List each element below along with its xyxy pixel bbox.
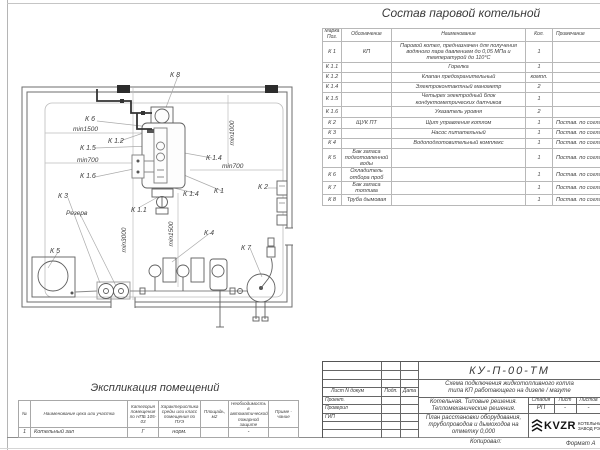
eq-cell: Электроконтактный манометр (392, 83, 526, 93)
eq-cell (342, 107, 392, 118)
sheets-value: - (576, 405, 600, 412)
window-marker (117, 85, 130, 93)
table-row: К 1КППаровой котел, предназначен для пол… (323, 42, 600, 63)
eq-header-designation: Обозначение (342, 29, 392, 42)
eq-cell: 1 (526, 149, 553, 168)
explication-table: № Наименование цеха или участка Категори… (18, 400, 299, 438)
sheet-value: - (554, 405, 576, 412)
doc-title-line: типа КП работающего на дизеле / мазуте (418, 388, 600, 395)
eq-cell: Постав. по согласован. (553, 149, 600, 168)
eq-cell: К 2 (323, 118, 342, 129)
doc-title-line: Схема подключения жидкотопливного котла (418, 381, 600, 388)
eq-cell (392, 195, 526, 206)
flue-arrow (120, 99, 124, 103)
eq-header-qty: Кол. (526, 29, 553, 42)
sheet-title-line: отметку 0,000 (419, 429, 528, 436)
eq-cell: К 3 (323, 129, 342, 139)
eq-cell: К 1.1 (323, 63, 342, 73)
ex-header: Категория помещения по НПБ 105-03 (128, 401, 159, 428)
eq-cell: К 1.5 (323, 93, 342, 107)
label-k8: К 8 (170, 72, 180, 79)
label-k7: К 7 (241, 245, 252, 252)
label-k15: К 1.5 (80, 145, 96, 152)
eq-cell: Труба дымовая (342, 195, 392, 206)
label-k14a: К 1.4 (206, 155, 222, 162)
eq-cell: К 1.6 (323, 107, 342, 118)
table-row: К 1.5Четырех электродный блок кондуктоме… (323, 93, 600, 107)
eq-cell: 1 (526, 195, 553, 206)
col-docum-label: Лист N докум (331, 389, 381, 395)
label-min700-a: min700 (77, 157, 99, 164)
eq-cell: К 1 (323, 42, 342, 63)
eq-cell: Щит управления котлом (392, 118, 526, 129)
water-treatment-k4 (140, 258, 243, 327)
role-gip: ГИП (325, 415, 381, 421)
ex-header: Наименование цеха или участка (31, 401, 128, 428)
table-row: К 7Бак запаса топлива1Постав. по согласо… (323, 181, 600, 194)
equipment-table: Марка Поз. Обозначение Наименование Кол.… (322, 28, 600, 206)
label-k14b: К 1.4 (183, 191, 199, 198)
format-label: Формат А (566, 441, 596, 447)
eq-cell (342, 93, 392, 107)
eq-header-note: Примечание (553, 29, 600, 42)
eq-cell: К 4 (323, 139, 342, 149)
eq-cell: К 7 (323, 181, 342, 194)
tb-line (400, 362, 401, 438)
ex-header: Характеристика среды или класс помещения… (159, 401, 201, 428)
eq-cell (342, 83, 392, 93)
eq-cell: К 8 (323, 195, 342, 206)
table-row: 1 Котельный зал Г норм. - (19, 428, 299, 438)
sheet-title: План расстановки оборудования, трубопров… (419, 415, 528, 437)
kvzr-logo-mark-icon (531, 419, 543, 433)
project-name: Котельная. Типовые решения. Тепломеханич… (419, 399, 528, 413)
eq-cell: КП (342, 42, 392, 63)
eq-cell: Охладитель отбора проб (342, 168, 392, 181)
window-marker (265, 85, 278, 93)
flue-pipe-k8 (97, 89, 152, 129)
tb-line (381, 362, 382, 438)
stage-header: Стадия (528, 398, 554, 404)
eq-cell: К 1.2 (323, 73, 342, 83)
equipment-table-title: Состав паровой котельной (322, 6, 600, 20)
eq-cell: 1 (526, 42, 553, 63)
eq-cell: К 5 (323, 149, 342, 168)
sheet-title-line: трубопроводов и дымоходов на (419, 422, 528, 429)
sheet-title-line: План расстановки оборудования, (419, 415, 528, 422)
ex-cell (201, 428, 229, 438)
eq-cell: 1 (526, 168, 553, 181)
eq-cell (342, 129, 392, 139)
eq-cell (342, 73, 392, 83)
eq-cell (342, 63, 392, 73)
table-row: К 8Труба дымовая1Постав. по согласован. (323, 195, 600, 206)
eq-cell: Постав. по согласован. (553, 129, 600, 139)
title-block: КУ-П-00-ТМ Схема подключения жидкотоплив… (322, 361, 600, 438)
eq-cell: Водоподготовительный комплекс (392, 139, 526, 149)
eq-cell: Насос питательный (392, 129, 526, 139)
eq-cell (553, 63, 600, 73)
kvzr-logo-text: KVZR (544, 420, 576, 432)
eq-cell: Клапан предохранительный (392, 73, 526, 83)
label-rezerv: Резерв (66, 210, 88, 217)
col-sign-label: Подп. (382, 389, 400, 395)
flue-arrow (141, 111, 145, 115)
eq-cell (392, 149, 526, 168)
table-row: К 5Бак запаса подготовленной воды1Постав… (323, 149, 600, 168)
eq-cell (553, 107, 600, 118)
tb-line (418, 379, 600, 380)
company-logo: KVZR КОТЕЛЬНЫЙ ЗАВОД РЭ (531, 416, 600, 436)
eq-cell (392, 181, 526, 194)
company-name-line: ЗАВОД РЭ (578, 426, 600, 432)
label-k11: К 1.1 (131, 207, 147, 214)
eq-cell: 2 (526, 107, 553, 118)
label-min1500-b: min1500 (168, 221, 175, 246)
tb-line (323, 379, 418, 380)
ex-header: № (19, 401, 31, 428)
drawing-sheet: { "equipment_table": { "title": "Состав … (0, 0, 600, 450)
eq-cell: Постав. по согласован. (553, 118, 600, 129)
ex-cell: норм. (159, 428, 201, 438)
ex-cell: 1 (19, 428, 31, 438)
eq-cell: 1 (526, 118, 553, 129)
eq-cell: 1 (526, 63, 553, 73)
table-row: К 3Насос питательный1Постав. по согласов… (323, 129, 600, 139)
label-min700-b: min700 (222, 163, 244, 170)
ex-header: Площадь, м2 (201, 401, 229, 428)
company-name: КОТЕЛЬНЫЙ ЗАВОД РЭ (578, 421, 600, 432)
eq-cell (553, 93, 600, 107)
label-min3000: min3000 (121, 227, 128, 252)
table-row: К 4Водоподготовительный комплекс1Постав.… (323, 139, 600, 149)
eq-cell: 1 (526, 93, 553, 107)
eq-cell (342, 139, 392, 149)
table-row: К 6Охладитель отбора проб1Постав. по сог… (323, 168, 600, 181)
eq-cell: К 6 (323, 168, 342, 181)
eq-cell: Постав. по согласован. (553, 168, 600, 181)
eq-cell: компл. (526, 73, 553, 83)
label-min1000: min1000 (229, 120, 236, 145)
label-k3: К 3 (58, 193, 68, 200)
doc-number: КУ-П-00-ТМ (418, 363, 600, 379)
floor-plan: К 8 К 6 min1500 К 1.2 К 1.5 min700 К 1.6… (0, 0, 310, 350)
eq-header-row: Марка Поз. Обозначение Наименование Кол.… (323, 29, 600, 42)
table-row: К 1.2Клапан предохранительныйкомпл. (323, 73, 600, 83)
burner-k11 (152, 189, 173, 214)
stage-value: РП (528, 405, 554, 412)
tb-line (323, 429, 418, 430)
col-date-label: Дата (401, 389, 418, 395)
paper-bottom-edge (0, 448, 600, 449)
table-row: К 2ЩУК ПТЩит управления котлом1Постав. п… (323, 118, 600, 129)
project-name-line: Тепломеханические решения. (419, 406, 528, 413)
eq-cell: Бак запаса топлива (342, 181, 392, 194)
eq-cell: 2 (526, 83, 553, 93)
sheets-header: Листов (576, 398, 600, 404)
door-opening-right (284, 228, 294, 245)
label-k2: К 2 (258, 184, 268, 191)
label-k12: К 1.2 (108, 138, 124, 145)
label-min1500-a: min1500 (73, 126, 98, 133)
eq-cell: Постав. по согласован. (553, 181, 600, 194)
sheet-header: Лист (554, 398, 576, 404)
table-row: К 1.6Указатель уровня2 (323, 107, 600, 118)
eq-header-pos: Марка Поз. (323, 29, 342, 42)
eq-cell: 1 (526, 139, 553, 149)
tb-line (323, 413, 418, 414)
eq-cell: ЩУК ПТ (342, 118, 392, 129)
doc-title: Схема подключения жидкотопливного котла … (418, 381, 600, 397)
label-k4: К 4 (204, 230, 214, 237)
explication-title: Экспликация помещений (30, 382, 280, 394)
table-row: К 1.1Горелка1 (323, 63, 600, 73)
ex-header: Необходимость в автоматической пожарной … (229, 401, 269, 428)
eq-cell: Бак запаса подготовленной воды (342, 149, 392, 168)
ex-header-row: № Наименование цеха или участка Категори… (19, 401, 299, 428)
role-checked: Проверил (325, 406, 381, 412)
eq-cell: Постав. по согласован. (553, 139, 600, 149)
ex-cell: - (229, 428, 269, 438)
water-tank-k5 (32, 257, 75, 297)
ex-cell: Котельный зал (31, 428, 128, 438)
tb-line (323, 421, 418, 422)
ex-cell: Г (128, 428, 159, 438)
eq-cell: Четырех электродный блок кондуктометриче… (392, 93, 526, 107)
eq-cell (553, 73, 600, 83)
project-name-line: Котельная. Типовые решения. (419, 399, 528, 406)
copied-label: Копировал: (470, 439, 502, 445)
eq-cell (553, 83, 600, 93)
tb-line (323, 370, 418, 371)
eq-header-name: Наименование (392, 29, 526, 42)
ex-header: Приме - чание (269, 401, 299, 428)
eq-cell (392, 168, 526, 181)
label-k5: К 5 (50, 248, 60, 255)
role-project: Проект. (325, 398, 381, 404)
table-row: К 1.4Электроконтактный манометр2 (323, 83, 600, 93)
eq-cell (553, 42, 600, 63)
eq-cell: Указатель уровня (392, 107, 526, 118)
ex-cell (269, 428, 299, 438)
label-k1: К 1 (214, 188, 224, 195)
control-panel-k2 (277, 181, 287, 225)
label-k6: К 6 (85, 116, 95, 123)
eq-cell: Паровой котел, предназначен для получени… (392, 42, 526, 63)
boiler-k1 (132, 107, 185, 188)
label-k16: К 1.6 (80, 173, 96, 180)
eq-cell: Постав. по согласован. (553, 195, 600, 206)
eq-cell: Горелка (392, 63, 526, 73)
eq-cell: 1 (526, 129, 553, 139)
eq-cell: К 1.4 (323, 83, 342, 93)
eq-cell: 1 (526, 181, 553, 194)
